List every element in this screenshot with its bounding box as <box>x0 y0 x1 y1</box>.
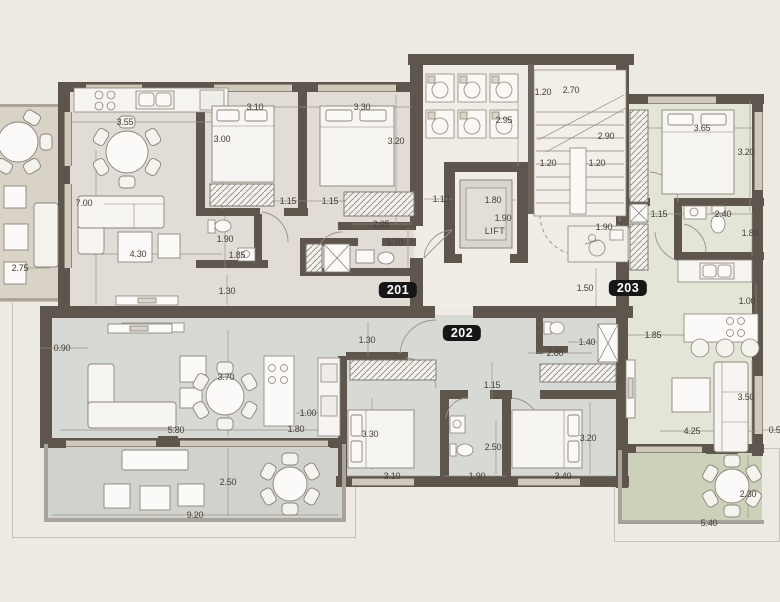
dimension-label: 1.20 <box>540 158 557 168</box>
dimension-label: 1.50 <box>577 283 594 293</box>
lift-label: LIFT <box>485 226 506 236</box>
dimension-label: 2.75 <box>12 263 29 273</box>
dimension-label: 1.85 <box>645 330 662 340</box>
dimension-label: 3.10 <box>247 102 264 112</box>
dimension-label: 3.30 <box>354 102 371 112</box>
dimension-label: 1.70 <box>387 237 404 247</box>
dimension-label: 1.15 <box>651 209 668 219</box>
dimension-label: 1.00 <box>300 408 317 418</box>
dimension-label: 1.00 <box>739 296 756 306</box>
dimension-label: 0.50 <box>769 425 780 435</box>
wc-202 <box>544 322 564 334</box>
dimension-label: 1.10 <box>433 194 450 204</box>
dimension-label: 4.30 <box>130 249 147 259</box>
dimension-label: 5.40 <box>701 518 718 528</box>
dimension-label: 1.90 <box>596 222 613 232</box>
dimension-label: 7.00 <box>76 198 93 208</box>
dimension-label: 3.20 <box>388 136 405 146</box>
dimension-label: 1.15 <box>322 196 339 206</box>
dimension-label: 3.10 <box>384 471 401 481</box>
dimension-label: 1.90 <box>495 213 512 223</box>
unit-badge-203: 203 <box>609 280 647 296</box>
dimension-label: 1.80 <box>288 424 305 434</box>
dimension-label: 1.80 <box>485 195 502 205</box>
dimension-label: 2.95 <box>496 115 513 125</box>
dimension-label: 1.40 <box>579 337 596 347</box>
dimension-label: 2.50 <box>485 442 502 452</box>
dimension-label: 3.20 <box>738 147 755 157</box>
dimension-label: 0.90 <box>54 343 71 353</box>
dimension-label: 3.00 <box>214 134 231 144</box>
bed-202-b <box>512 410 582 468</box>
bathroom-202 <box>450 416 473 456</box>
kitchen-203 <box>678 260 759 357</box>
bed-202-a <box>348 410 414 468</box>
utility-meters <box>426 74 518 138</box>
laundry-201 <box>306 244 394 272</box>
dimension-label: 2.90 <box>598 131 615 141</box>
dimension-label: 2.30 <box>740 489 757 499</box>
unit-badge-201: 201 <box>379 282 417 298</box>
dimension-label: 3.50 <box>738 392 755 402</box>
dimension-label: 1.85 <box>229 250 246 260</box>
wardrobes-201 <box>210 184 414 216</box>
dimension-label: 1.90 <box>469 471 486 481</box>
bed-201-a <box>212 106 274 182</box>
dimension-label: 1.15 <box>280 196 297 206</box>
balcony-203-furniture <box>701 455 763 517</box>
furniture-layer <box>0 0 780 602</box>
dimension-label: 2.80 <box>547 348 564 358</box>
dimension-label: 2.70 <box>563 85 580 95</box>
floor-plan-canvas: LIFT 3.553.103.303.003.207.001.151.152.0… <box>0 0 780 602</box>
dimension-label: 2.05 <box>373 219 390 229</box>
wardrobe-203 <box>630 110 648 270</box>
dimension-label: 1.30 <box>359 335 376 345</box>
dimension-label: 1.30 <box>219 286 236 296</box>
living-203 <box>626 360 748 452</box>
dimension-label: 1.15 <box>484 380 501 390</box>
dimension-label: 4.25 <box>684 426 701 436</box>
bed-201-b <box>320 106 394 186</box>
dimension-label: 9.20 <box>187 510 204 520</box>
dimension-label: 1.90 <box>217 234 234 244</box>
dimension-label: 3.55 <box>117 117 134 127</box>
balcony-202-furniture <box>104 450 321 515</box>
dimension-label: 1.20 <box>535 87 552 97</box>
dimension-label: 1.20 <box>589 158 606 168</box>
dimension-label: 3.65 <box>694 123 711 133</box>
dimension-label: 5.80 <box>168 425 185 435</box>
dimension-label: 3.40 <box>555 471 572 481</box>
dimension-label: 3.30 <box>362 429 379 439</box>
dimension-label: 2.50 <box>220 477 237 487</box>
balcony-201-furniture <box>0 109 58 284</box>
dimension-label: 2.40 <box>715 209 732 219</box>
dimension-label: 3.70 <box>218 372 235 382</box>
kitchen-201 <box>74 88 228 112</box>
dimension-label: 1.80 <box>742 228 759 238</box>
unit-badge-202: 202 <box>443 325 481 341</box>
living-202 <box>88 324 206 428</box>
dimension-label: 3.20 <box>580 433 597 443</box>
